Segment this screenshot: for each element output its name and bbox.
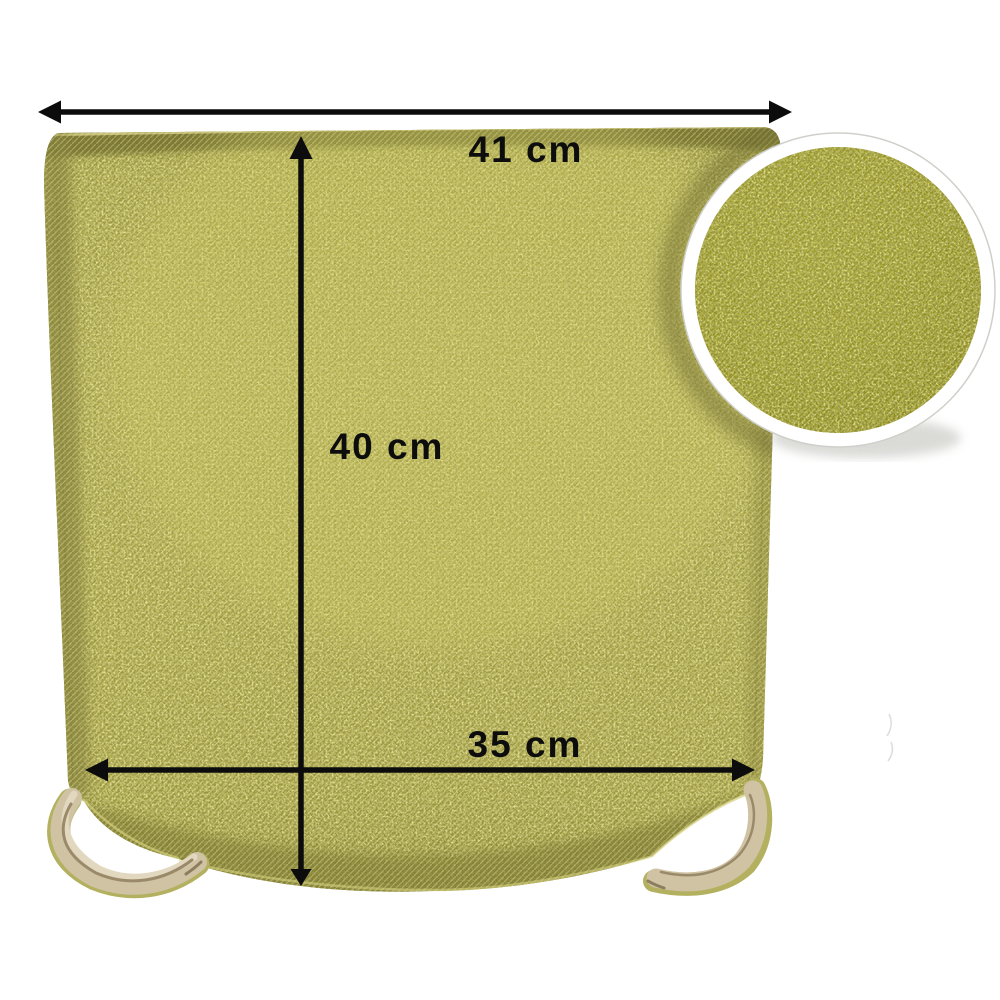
svg-text:40 cm: 40 cm <box>330 426 445 467</box>
svg-text:35 cm: 35 cm <box>468 724 583 765</box>
svg-text:41 cm: 41 cm <box>469 129 584 170</box>
